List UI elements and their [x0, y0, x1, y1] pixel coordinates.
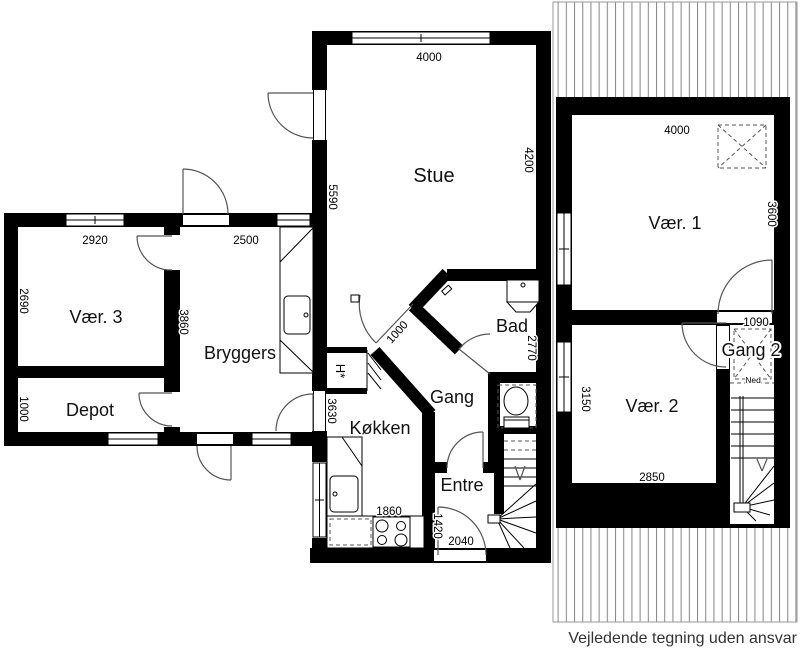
- bryggers-back-door: [197, 446, 231, 480]
- left-building: Vær. 3 Depot Bryggers 2920 2690 2500 386…: [4, 169, 313, 480]
- vaer3-door-gap: [163, 235, 181, 270]
- room-label-koekken: Køkken: [349, 418, 410, 438]
- floor-plan-page: Vær. 1 Vær. 2 Gang 2 4000 3600 1090 3150…: [0, 0, 800, 654]
- stue-window: [352, 32, 490, 44]
- koekken-faucet: [333, 492, 337, 496]
- dim-vaer1-height: 3600: [765, 201, 777, 227]
- bryggers-faucet: [304, 313, 308, 317]
- depot-door-gap: [163, 392, 181, 427]
- room-label-gang2: Gang 2: [721, 340, 780, 360]
- annex-wall-top: [556, 97, 790, 115]
- bryggers-koekken-door: [276, 394, 313, 431]
- dim-bryggers-side: 3860: [177, 309, 189, 335]
- stove: [373, 517, 410, 547]
- entre-door-gap: [434, 549, 486, 562]
- annex-stair-newel: [734, 503, 750, 512]
- dim-vaer1-width: 4000: [664, 125, 690, 137]
- vaer2-window: [557, 342, 571, 412]
- room-label-stue: Stue: [413, 165, 454, 187]
- bryggers-exterior-door: [183, 169, 228, 214]
- bad-sink: [507, 280, 539, 312]
- room-label-bryggers: Bryggers: [204, 343, 276, 363]
- room-label-closet: H*: [333, 364, 348, 378]
- bryggers-window-top: [277, 214, 310, 226]
- dim-koekken-side: 3630: [325, 398, 337, 424]
- bryggers-door-gap: [183, 214, 229, 226]
- room-label-gang: Gang: [430, 387, 474, 407]
- dim-vaer2-width: 2850: [639, 472, 665, 484]
- stairs-down-note: Ned: [745, 375, 761, 385]
- depot-window: [108, 433, 158, 445]
- dim-stue-width: 4000: [416, 52, 442, 64]
- dim-depot-height: 1000: [17, 396, 29, 422]
- dim-entre-width: 2040: [448, 536, 474, 548]
- stair-wall-west: [494, 434, 504, 514]
- bryggers-counter: [280, 227, 313, 373]
- dim-koekken-width: 1860: [376, 506, 402, 518]
- bad-wall-top: [447, 269, 536, 281]
- dim-bad-height: 2770: [525, 335, 537, 361]
- room-label-depot: Depot: [66, 400, 114, 420]
- dim-gang2-width: 1090: [743, 317, 769, 329]
- room-label-entre: Entre: [440, 475, 483, 495]
- right-building: Vær. 1 Vær. 2 Gang 2 4000 3600 1090 3150…: [553, 2, 797, 622]
- dim-vaer3-height: 2690: [17, 288, 29, 314]
- room-label-bad: Bad: [496, 316, 528, 336]
- bryggers-back-door-gap: [197, 433, 233, 445]
- vaer3-window: [66, 214, 124, 226]
- bryggers-window-bottom: [252, 433, 291, 445]
- dim-bryggers-width: 2500: [233, 235, 259, 247]
- disclaimer-text: Vejledende tegning uden ansvar: [568, 630, 797, 647]
- stue-exterior-door: [268, 93, 313, 138]
- dim-vaer3-width: 2920: [82, 235, 108, 247]
- vaer3-depot-divider: [4, 366, 178, 378]
- entre-wall-top-right: [483, 462, 500, 473]
- dim-vaer2-height: 3150: [579, 386, 591, 412]
- room-label-vaer1: Vær. 1: [648, 213, 701, 233]
- floor-plan-svg: Vær. 1 Vær. 2 Gang 2 4000 3600 1090 3150…: [0, 0, 800, 654]
- left-wall-west: [4, 213, 18, 446]
- room-label-vaer3: Vær. 3: [69, 307, 122, 327]
- dim-stue-right: 4200: [522, 147, 534, 173]
- middle-stair-newel: [488, 515, 500, 523]
- left-wall-top: [4, 213, 312, 227]
- dim-stue-side: 5590: [326, 184, 338, 210]
- room-label-vaer2: Vær. 2: [625, 396, 678, 416]
- vaer1-window: [557, 213, 571, 285]
- dim-entre-height: 1420: [431, 513, 443, 539]
- koekken-window: [313, 463, 326, 537]
